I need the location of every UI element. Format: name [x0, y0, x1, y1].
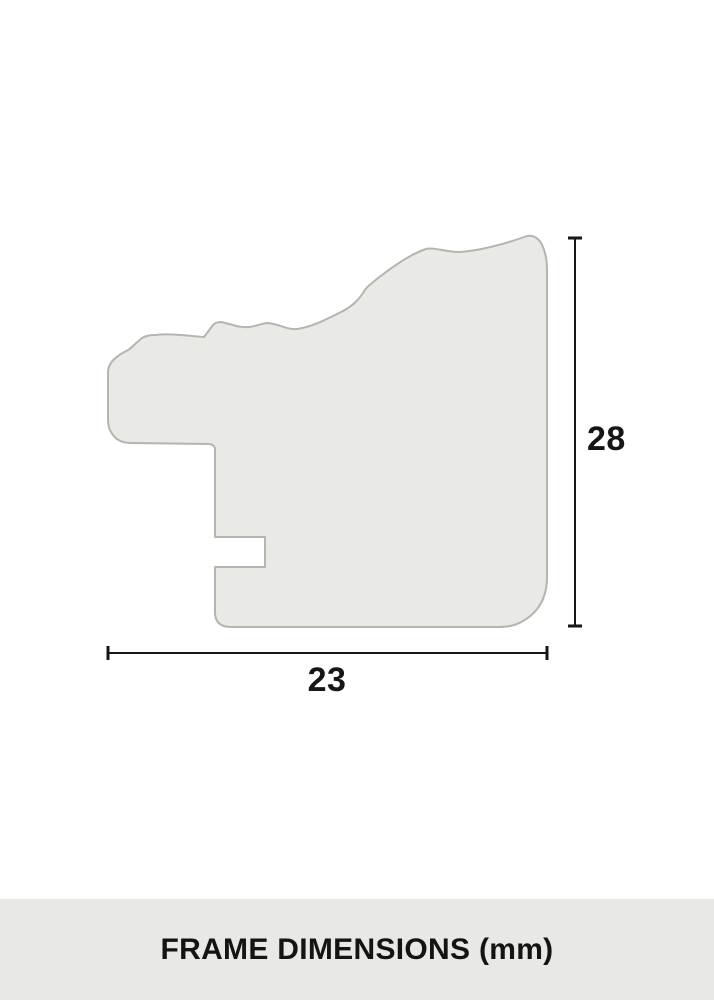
width-dimension-line — [108, 646, 547, 660]
frame-profile-shape — [108, 236, 547, 627]
height-dimension-label: 28 — [587, 422, 626, 456]
height-dimension-line — [568, 238, 582, 626]
diagram-canvas: 28 23 FRAME DIMENSIONS (mm) — [0, 0, 714, 1000]
caption: FRAME DIMENSIONS (mm) — [161, 935, 554, 965]
width-dimension-label: 23 — [308, 663, 347, 697]
frame-profile-diagram — [0, 0, 714, 1000]
caption-strip: FRAME DIMENSIONS (mm) — [0, 899, 714, 1000]
